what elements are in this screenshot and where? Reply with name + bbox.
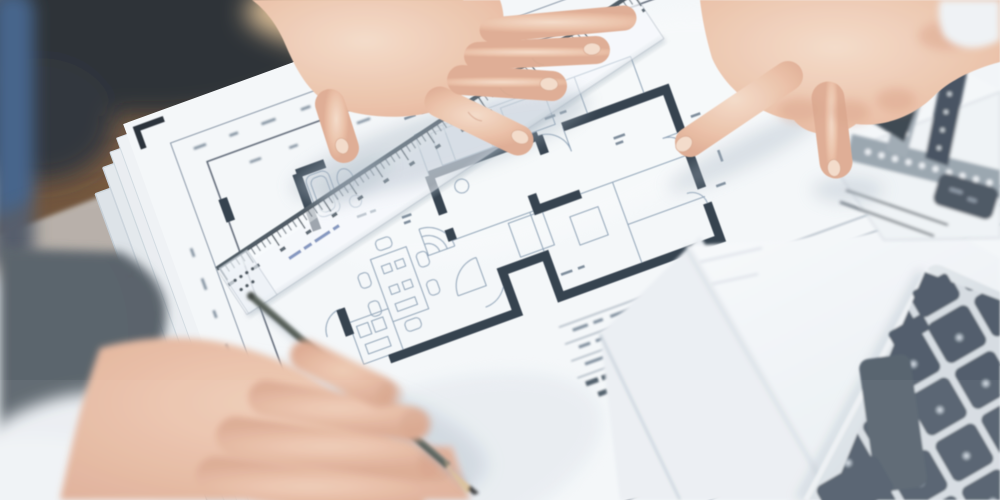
resting-middle-finger (462, 80, 552, 86)
resting-ring-finger (478, 50, 596, 56)
photo-canvas (0, 0, 1000, 500)
ring-finger (216, 476, 404, 500)
pencil-butt (247, 292, 255, 300)
thumbtip-shade (377, 381, 403, 407)
architects-blueprint-photo (0, 0, 1000, 500)
resting-pinky-finger (492, 18, 624, 30)
fingertip-shade (400, 408, 432, 440)
middle-finger (236, 436, 420, 462)
